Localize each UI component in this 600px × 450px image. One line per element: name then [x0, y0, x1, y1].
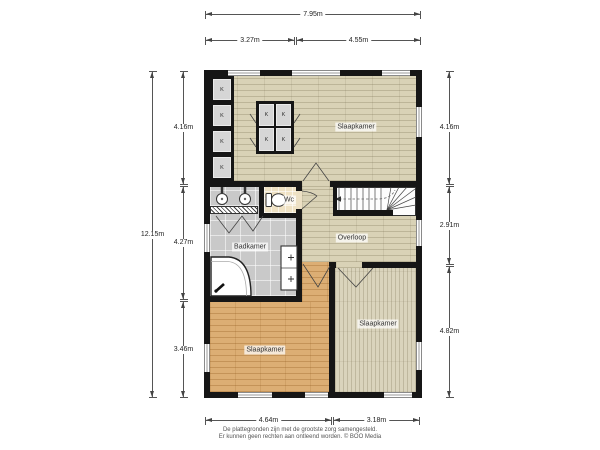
dimension-left-middle: 4.27m [183, 187, 184, 299]
room-label-landing: Overloop [336, 234, 368, 243]
dimension-label: 12.15m [139, 231, 166, 239]
dimension-right-bottom: 4.82m [449, 267, 450, 397]
washbasin-icon [217, 187, 251, 205]
dimension-label: 4.16m [172, 124, 195, 132]
disclaimer-line2: Er kunnen geen rechten aan ontleend word… [0, 434, 600, 441]
fixtures-overlay [204, 70, 422, 398]
dimension-left-bottom: 3.46m [183, 302, 184, 397]
dimension-bottom-left: 4.64m [206, 420, 331, 421]
dimension-label: 3.27m [237, 37, 262, 45]
dimension-label: 4.27m [172, 239, 195, 247]
disclaimer: De plattegronden zijn met de grootste zo… [0, 427, 600, 441]
dimension-label: 4.64m [256, 417, 281, 425]
dimension-top-right: 4.55m [297, 40, 420, 41]
dimension-top-left: 3.27m [206, 40, 294, 41]
dimension-top-total: 7.95m [206, 14, 420, 15]
radiator-icon [210, 206, 258, 214]
room-label-bedroom-bottom-left: Slaapkamer [244, 346, 285, 355]
dimension-bottom-right: 3.18m [334, 420, 419, 421]
room-label-bedroom-top: Slaapkamer [335, 123, 376, 132]
dimension-label: 2.91m [438, 222, 461, 230]
dimension-right-middle: 2.91m [449, 187, 450, 264]
dimension-right-top: 4.16m [449, 72, 450, 184]
dimension-label: 7.95m [300, 11, 325, 19]
dimension-label: 4.82m [438, 328, 461, 336]
double-washbasin-icon [281, 246, 297, 290]
dimension-label: 4.55m [346, 37, 371, 45]
dimension-label: 3.46m [172, 346, 195, 354]
room-label-bathroom: Badkamer [232, 243, 268, 252]
dimension-left-total: 12.15m [152, 72, 153, 397]
room-label-bedroom-bottom-right: Slaapkamer [357, 320, 398, 329]
disclaimer-line1: De plattegronden zijn met de grootste zo… [0, 427, 600, 434]
dimension-label: 3.18m [364, 417, 389, 425]
room-label-wc: Wc [282, 196, 296, 205]
corner-bath-icon [211, 257, 251, 296]
dimension-left-top: 4.16m [183, 72, 184, 184]
dimension-label: 4.16m [438, 124, 461, 132]
floorplan-canvas: 7.95m 3.27m 4.55m 12.15m 4.16m 4.27m 3.4… [0, 0, 600, 450]
